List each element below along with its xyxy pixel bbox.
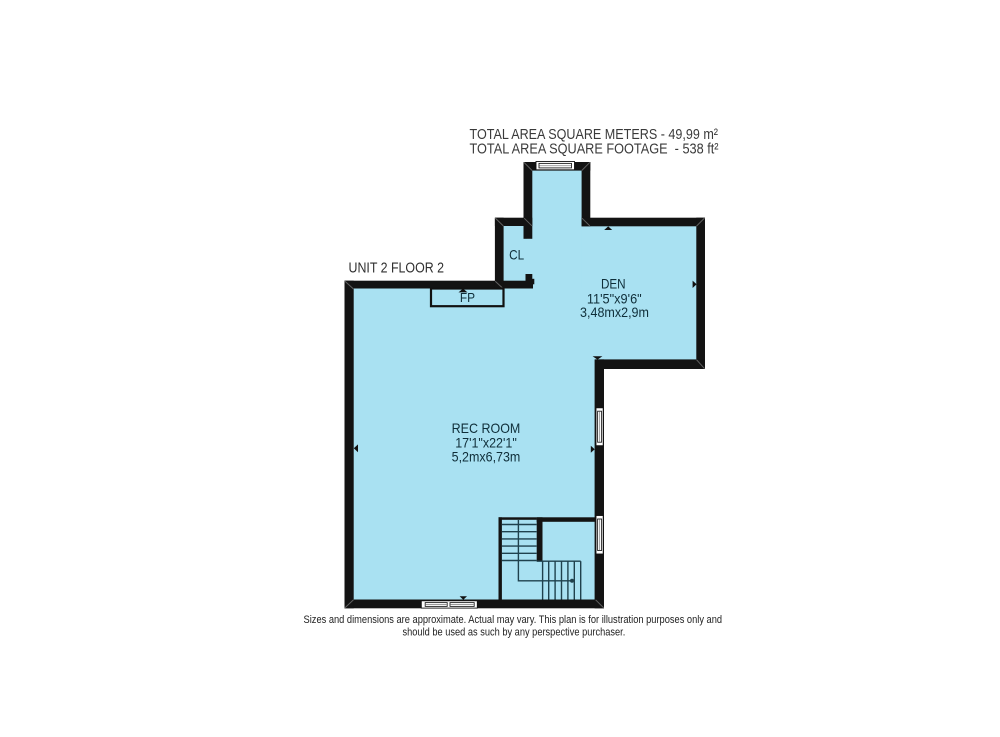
svg-text:TOTAL AREA SQUARE FOOTAGE - 5: TOTAL AREA SQUARE FOOTAGE - 538 ft² — [470, 141, 719, 158]
svg-text:UNIT 2 FLOOR 2: UNIT 2 FLOOR 2 — [349, 259, 445, 276]
svg-text:FP: FP — [460, 290, 475, 305]
svg-text:DEN: DEN — [601, 277, 626, 292]
svg-text:11'5"x9'6": 11'5"x9'6" — [587, 291, 642, 306]
svg-text:5,2mx6,73m: 5,2mx6,73m — [452, 449, 521, 465]
svg-text:should be used as such by any: should be used as such by any perspectiv… — [403, 626, 626, 638]
svg-text:3,48mx2,9m: 3,48mx2,9m — [580, 305, 649, 320]
svg-text:CL: CL — [509, 247, 524, 263]
svg-text:Sizes and dimensions are appro: Sizes and dimensions are approximate. Ac… — [304, 614, 723, 626]
